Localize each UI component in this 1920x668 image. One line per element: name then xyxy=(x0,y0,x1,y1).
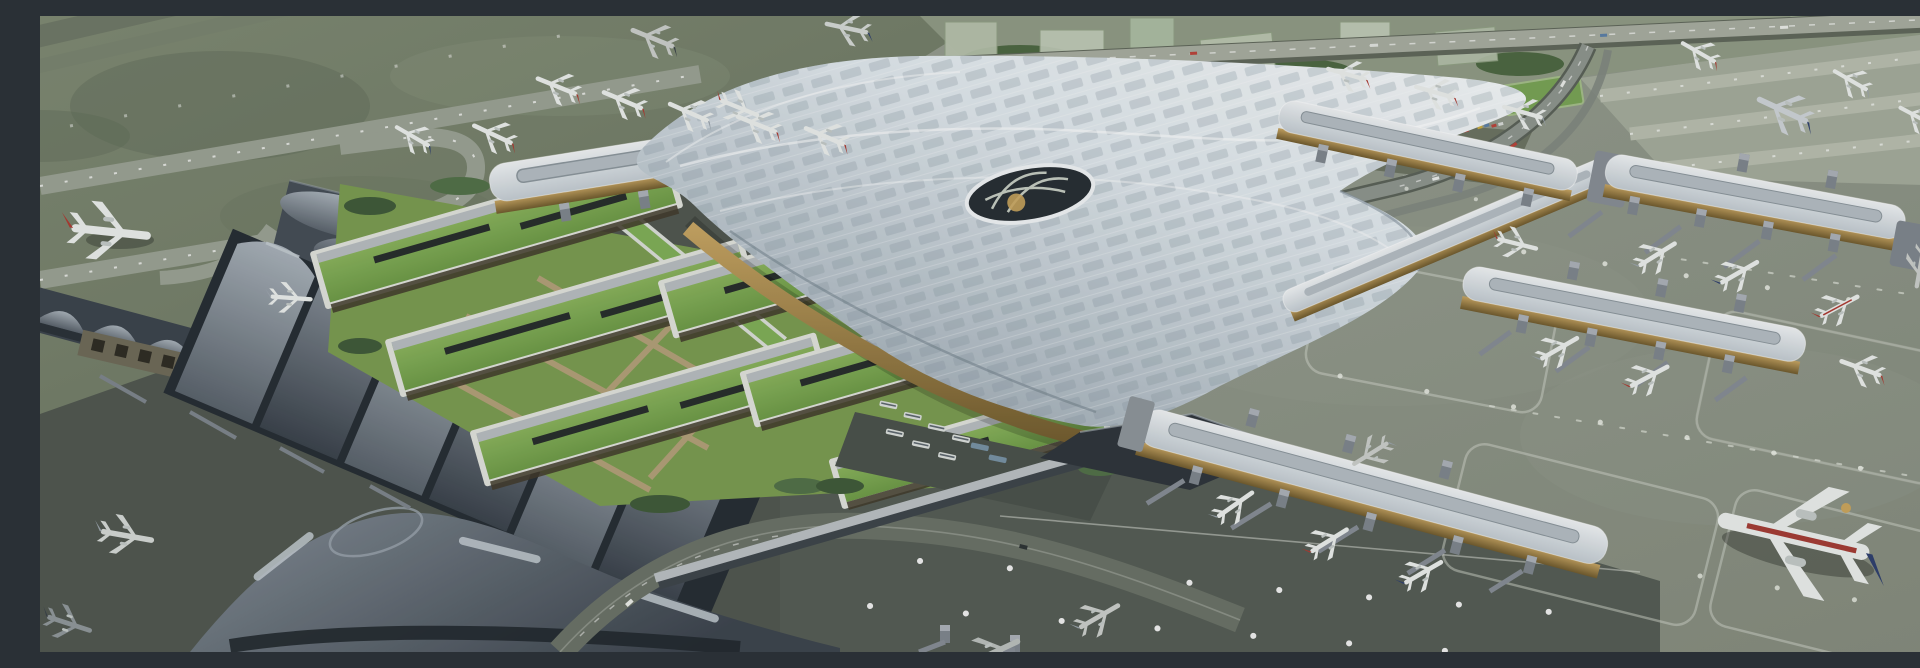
airport-rendering-canvas xyxy=(40,16,1920,652)
vignette xyxy=(40,16,1920,652)
airport-rendering xyxy=(40,16,1920,652)
